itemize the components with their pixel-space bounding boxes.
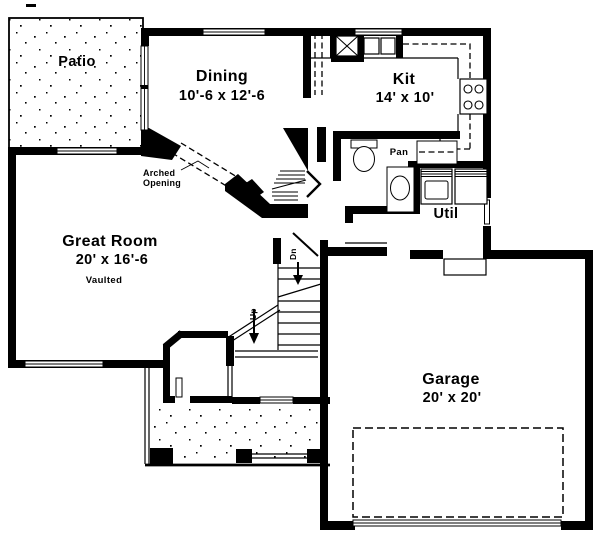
patio-slider-window bbox=[141, 46, 148, 130]
wall-segment bbox=[163, 344, 170, 403]
wall-segment bbox=[483, 250, 592, 259]
wall-segment bbox=[303, 28, 311, 98]
wall-segment bbox=[325, 247, 387, 256]
garage-ceiling-dash bbox=[353, 428, 563, 517]
corner-tick bbox=[26, 4, 36, 7]
room-label-great-room: Great Room bbox=[62, 233, 158, 250]
window bbox=[260, 397, 293, 403]
window bbox=[25, 361, 103, 367]
porch-post bbox=[150, 448, 173, 465]
washer-icon bbox=[421, 169, 452, 204]
annotation-arched-opening: Arched bbox=[143, 168, 175, 178]
firebox-hatch bbox=[272, 171, 306, 200]
floor-plan-svg: Patio Dining 10'-6 x 12'-6 Kit 14' x 10'… bbox=[0, 0, 600, 535]
room-dims-garage: 20' x 20' bbox=[423, 390, 482, 406]
wall-segment bbox=[293, 397, 330, 404]
wall-segment bbox=[358, 33, 364, 58]
wall-segment bbox=[317, 127, 326, 162]
wall-segment bbox=[141, 28, 149, 46]
fireplace-icon bbox=[225, 128, 308, 218]
vanity-sink-icon bbox=[387, 167, 414, 212]
porch-post bbox=[236, 449, 252, 463]
room-dims-dining: 10'-6 x 12'-6 bbox=[179, 88, 265, 104]
arched-opening-leader bbox=[181, 161, 209, 170]
stairs-dn-label: Dn bbox=[288, 248, 298, 260]
room-label-utility: Util bbox=[434, 206, 459, 222]
stair-down-arrow bbox=[293, 262, 303, 285]
stair-landing bbox=[235, 351, 318, 357]
wall-segment bbox=[232, 397, 260, 404]
wall-segment bbox=[163, 396, 175, 403]
wall-segment bbox=[333, 131, 341, 181]
dryer-icon bbox=[455, 169, 487, 204]
patio-area bbox=[9, 4, 143, 150]
room-dims-great-room: 20' x 16'-6 bbox=[76, 252, 149, 268]
porch-area bbox=[145, 368, 330, 465]
refrigerator-space bbox=[315, 33, 322, 95]
powder-room-door bbox=[307, 171, 320, 197]
wall-segment bbox=[141, 28, 491, 36]
wall-segment bbox=[345, 206, 353, 223]
wall-segment bbox=[333, 131, 417, 139]
room-dims-kitchen: 14' x 10' bbox=[376, 90, 435, 106]
wall-segment bbox=[190, 396, 232, 403]
wall-segment bbox=[320, 240, 328, 530]
room-label-kitchen: Kit bbox=[393, 71, 416, 88]
wall-segment bbox=[178, 331, 228, 338]
front-door bbox=[176, 378, 182, 397]
range-icon bbox=[460, 79, 487, 114]
annotation-arched-opening: Opening bbox=[143, 178, 181, 188]
window bbox=[355, 29, 402, 35]
patio-slab bbox=[9, 18, 143, 150]
garage-entry-step bbox=[444, 259, 486, 275]
wall-segment bbox=[585, 250, 593, 530]
floor-plan: Patio Dining 10'-6 x 12'-6 Kit 14' x 10'… bbox=[0, 0, 600, 535]
window bbox=[57, 148, 117, 154]
kitchen-sink-icon bbox=[364, 38, 395, 54]
room-label-dining: Dining bbox=[196, 68, 248, 85]
staircase bbox=[227, 262, 321, 357]
wall-segment bbox=[330, 33, 336, 58]
room-label-pantry: Pan bbox=[390, 147, 409, 158]
room-label-garage: Garage bbox=[422, 371, 480, 388]
garage-overhead-door bbox=[353, 520, 561, 526]
room-note-great-room: Vaulted bbox=[86, 275, 123, 286]
wall-segment bbox=[8, 147, 16, 368]
wall-segment bbox=[410, 250, 443, 259]
wall-segment bbox=[325, 521, 355, 530]
toilet-icon bbox=[351, 140, 377, 172]
dishwasher-icon bbox=[336, 36, 358, 56]
stairs-up-label: Up bbox=[248, 308, 258, 320]
pantry-cabinet bbox=[417, 141, 457, 164]
laundry-fixtures bbox=[421, 169, 487, 204]
window bbox=[203, 29, 265, 35]
garage-interior bbox=[353, 428, 563, 517]
fireplace-mass bbox=[283, 128, 308, 171]
room-label-patio: Patio bbox=[58, 54, 95, 70]
wall-segment bbox=[561, 521, 593, 530]
wall-segment bbox=[273, 238, 281, 264]
wall-segment bbox=[396, 33, 403, 58]
